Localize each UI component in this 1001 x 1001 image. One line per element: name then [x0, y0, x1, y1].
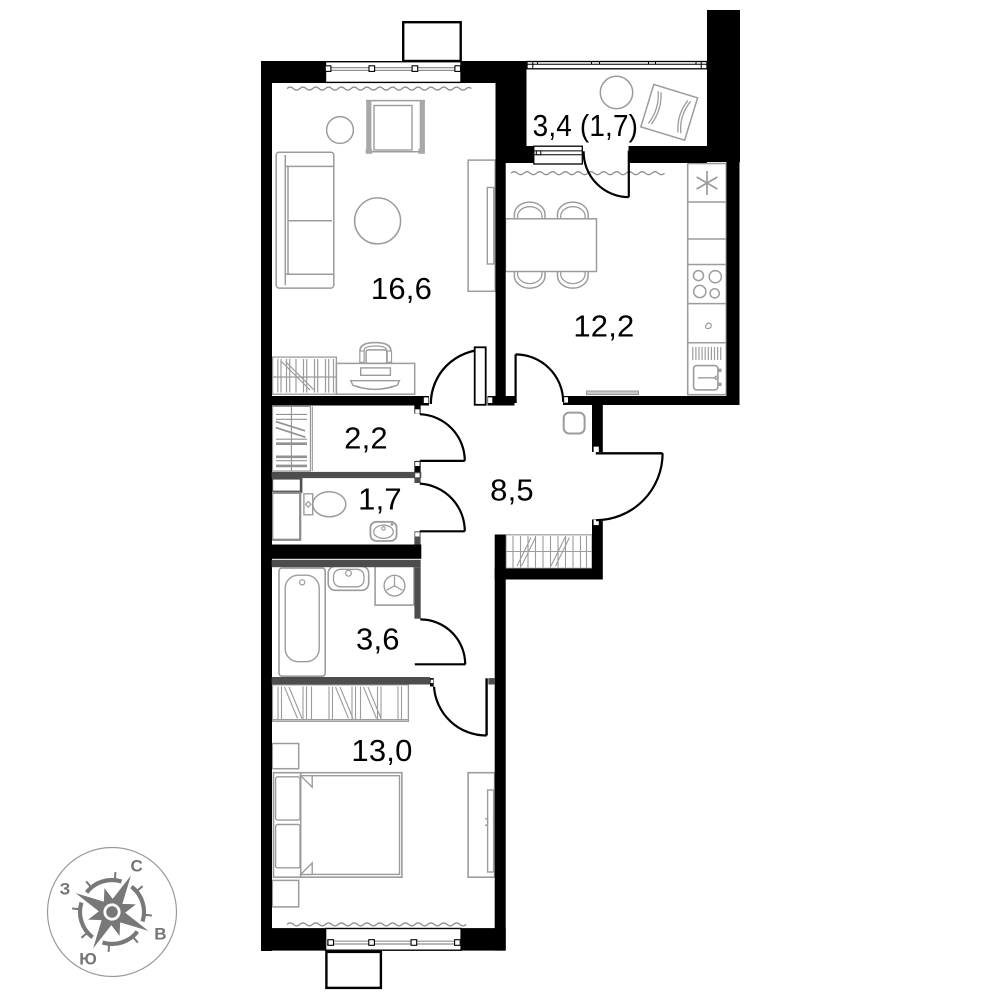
- svg-text:З: З: [60, 879, 71, 898]
- svg-text:12,2: 12,2: [573, 309, 634, 344]
- svg-text:3,6: 3,6: [356, 621, 400, 656]
- svg-text:2,2: 2,2: [344, 421, 388, 456]
- svg-text:16,6: 16,6: [371, 271, 432, 306]
- svg-text:С: С: [131, 857, 143, 876]
- svg-text:13,0: 13,0: [351, 733, 412, 768]
- svg-text:В: В: [154, 925, 166, 944]
- svg-text:Ю: Ю: [79, 950, 97, 969]
- svg-text:3,4 (1,7): 3,4 (1,7): [533, 109, 639, 144]
- svg-text:1,7: 1,7: [358, 482, 402, 517]
- svg-text:8,5: 8,5: [490, 473, 534, 508]
